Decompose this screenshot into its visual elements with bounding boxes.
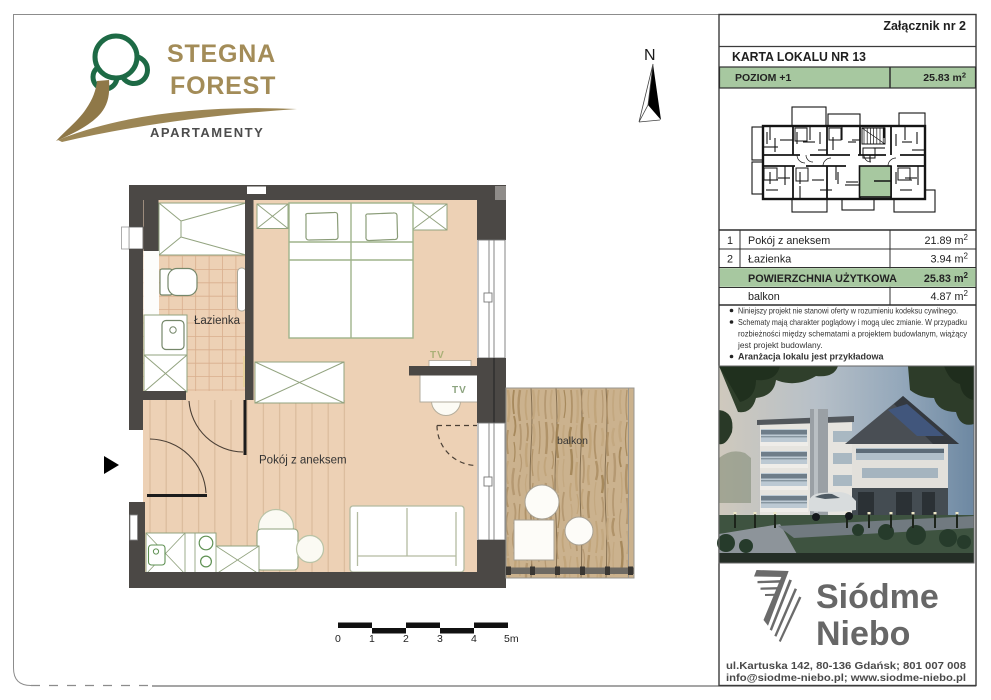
- svg-text:rozbieżności między schematami: rozbieżności między schematami a projekt…: [738, 329, 968, 339]
- svg-text:Siódme: Siódme: [816, 578, 939, 616]
- svg-text:jest projekt budowlany.: jest projekt budowlany.: [737, 340, 823, 350]
- svg-text:Schematy mają charakter pogląd: Schematy mają charakter poglądowy i mogą…: [738, 317, 967, 327]
- svg-text:APARTAMENTY: APARTAMENTY: [150, 125, 264, 140]
- svg-text:4.87 m2: 4.87 m2: [931, 289, 969, 303]
- svg-text:TV: TV: [430, 350, 445, 361]
- svg-text:Łazienka: Łazienka: [748, 254, 791, 266]
- svg-text:Niniejszy projekt nie stanowi: Niniejszy projekt nie stanowi oferty w r…: [738, 306, 958, 316]
- svg-text:KARTA LOKALU NR 13: KARTA LOKALU NR 13: [732, 49, 866, 64]
- svg-text:Pokój z aneksem: Pokój z aneksem: [259, 455, 347, 467]
- svg-text:Łazienka: Łazienka: [194, 315, 241, 327]
- svg-text:FOREST: FOREST: [170, 72, 276, 100]
- svg-text:25.83 m2: 25.83 m2: [924, 271, 969, 285]
- svg-text:info@siodme-niebo.pl; www.sio: info@siodme-niebo.pl; www.siodme-niebo.p…: [726, 673, 966, 684]
- svg-text:Aranżacja lokalu jest przykład: Aranżacja lokalu jest przykładowa: [738, 352, 885, 362]
- svg-text:2: 2: [727, 254, 733, 266]
- svg-text:1: 1: [369, 633, 375, 645]
- svg-text:Załącznik nr 2: Załącznik nr 2: [883, 19, 966, 33]
- svg-text:TV: TV: [452, 385, 467, 396]
- svg-text:balkon: balkon: [748, 291, 780, 303]
- svg-text:0: 0: [335, 633, 341, 645]
- svg-text:5m: 5m: [504, 633, 519, 645]
- svg-text:4: 4: [471, 633, 477, 645]
- svg-text:21.89 m2: 21.89 m2: [925, 233, 969, 247]
- svg-text:Pokój z aneksem: Pokój z aneksem: [748, 235, 830, 247]
- svg-text:STEGNA: STEGNA: [167, 40, 276, 68]
- svg-text:1: 1: [727, 235, 733, 247]
- svg-text:POWIERZCHNIA UŻYTKOWA: POWIERZCHNIA UŻYTKOWA: [748, 272, 897, 285]
- svg-text:2: 2: [403, 633, 409, 645]
- svg-text:Niebo: Niebo: [816, 615, 910, 653]
- svg-text:ul.Kartuska 142, 80-136 Gdańsk: ul.Kartuska 142, 80-136 Gdańsk; 801 007 …: [726, 661, 966, 672]
- svg-text:N: N: [644, 47, 656, 64]
- svg-text:3: 3: [437, 633, 443, 645]
- svg-text:3.94 m2: 3.94 m2: [931, 252, 969, 266]
- svg-text:POZIOM +1: POZIOM +1: [735, 72, 791, 84]
- svg-text:25.83 m2: 25.83 m2: [923, 71, 966, 85]
- svg-text:balkon: balkon: [557, 435, 588, 447]
